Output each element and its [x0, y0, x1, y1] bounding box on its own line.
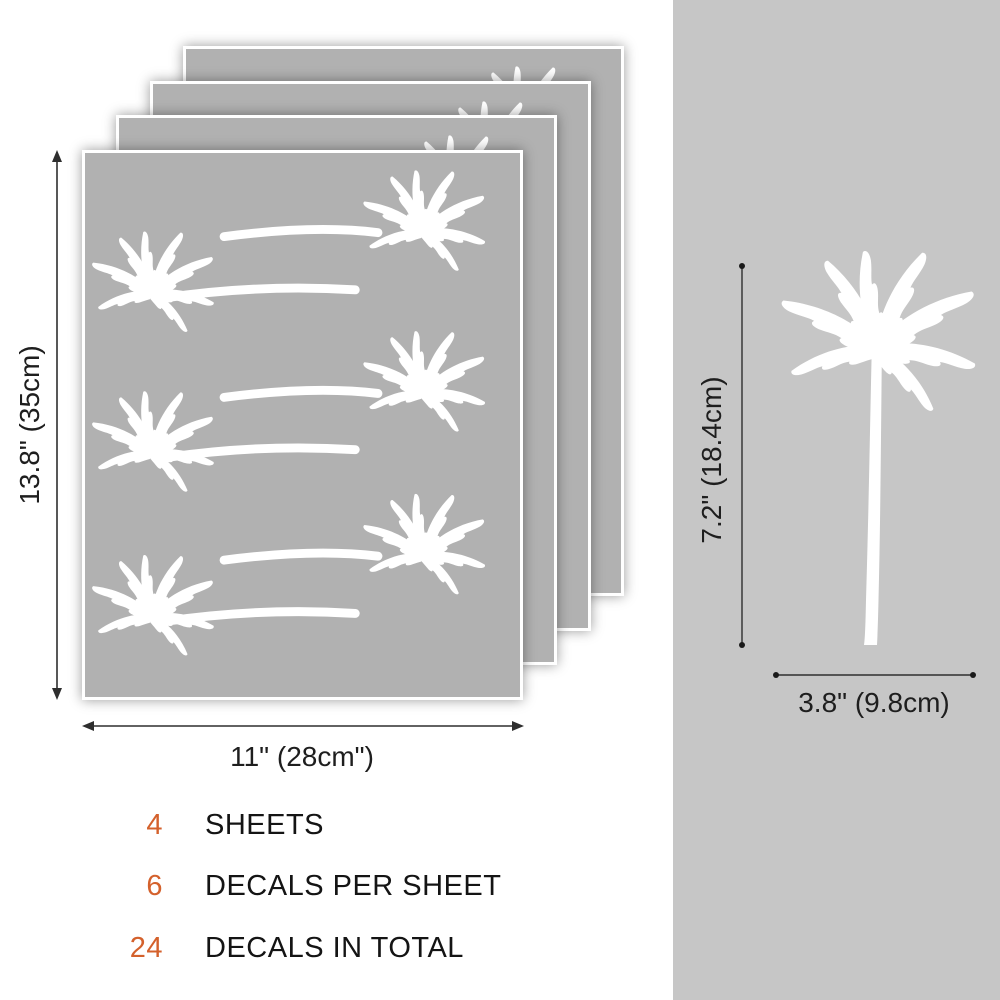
summary-count: 6 — [101, 870, 163, 903]
sheet-width-label: 11" (28cm") — [152, 743, 452, 771]
summary-row-sheets: 4 SHEETS — [101, 809, 324, 842]
decal-sheet-1 — [82, 150, 523, 700]
summary-row-decals-total: 24 DECALS IN TOTAL — [101, 932, 464, 965]
sheet-height-dimension-line — [52, 150, 62, 700]
sheet-width-dimension-line — [82, 721, 524, 731]
summary-row-decals-per-sheet: 6 DECALS PER SHEET — [101, 870, 501, 903]
sheet-height-label: 13.8" (35cm) — [16, 315, 44, 535]
summary-count: 24 — [101, 932, 163, 965]
summary-label: DECALS PER SHEET — [205, 870, 501, 903]
summary-count: 4 — [101, 809, 163, 842]
decal-height-label: 7.2" (18.4cm) — [698, 345, 726, 575]
palm-decal-sheet-art-icon — [85, 153, 520, 697]
summary-label: SHEETS — [205, 809, 324, 842]
decal-width-label: 3.8" (9.8cm) — [749, 689, 999, 717]
summary-label: DECALS IN TOTAL — [205, 932, 464, 965]
